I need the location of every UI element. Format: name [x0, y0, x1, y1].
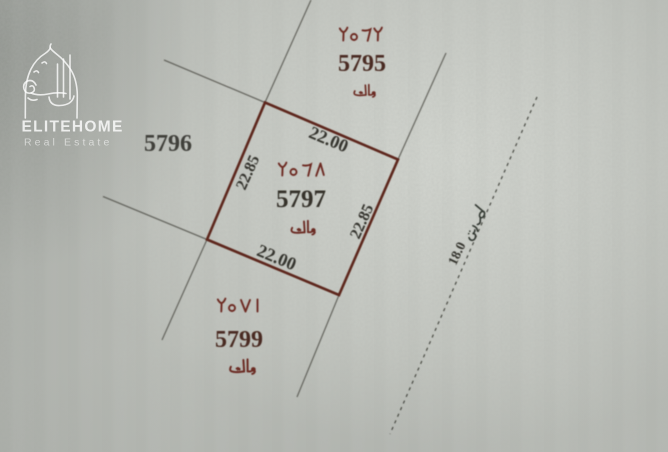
svg-text:Real Estate: Real Estate: [24, 137, 112, 149]
svg-text:5797: 5797: [276, 186, 326, 213]
svg-text:ELITEHOME: ELITEHOME: [22, 119, 124, 136]
svg-text:5799: 5799: [215, 327, 263, 353]
svg-text:5796: 5796: [144, 131, 192, 157]
svg-text:5795: 5795: [338, 51, 386, 77]
